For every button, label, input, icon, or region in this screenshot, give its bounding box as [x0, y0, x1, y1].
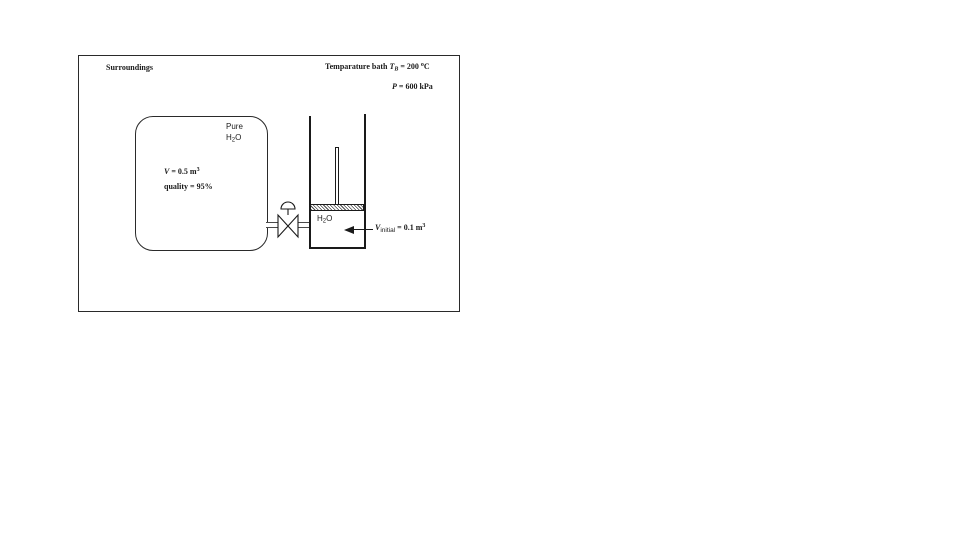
volume-arrow-line: [351, 229, 373, 230]
pressure-value: = 600 kPa: [397, 82, 433, 91]
tank-content-line2: H2O: [226, 132, 243, 147]
bath-value: = 200: [398, 62, 421, 71]
surroundings-box: Surroundings Temparature bath TB = 200 o…: [78, 55, 460, 312]
surroundings-label: Surroundings: [106, 63, 153, 72]
valve-icon: [276, 199, 300, 241]
cylinder-left-wall: [309, 116, 311, 248]
initial-volume-label: Vinitial = 0.1 m3: [375, 223, 425, 234]
tank-content-line1: Pure: [226, 121, 243, 132]
cylinder-right-wall: [364, 114, 366, 248]
cylinder-bottom: [309, 247, 366, 249]
bath-unit: C: [424, 62, 430, 71]
cylinder-water-label: H2O: [317, 213, 332, 228]
diagram-canvas: Surroundings Temparature bath TB = 200 o…: [0, 0, 960, 540]
bath-prefix: Temparature bath: [325, 62, 389, 71]
tank-quality-label: quality = 95%: [164, 182, 213, 191]
temperature-bath-label: Temparature bath TB = 200 oC: [325, 62, 430, 73]
tank-volume-label: V = 0.5 m3: [164, 167, 200, 176]
piston: [310, 204, 364, 211]
tank-content-label: Pure H2O: [226, 121, 243, 147]
pressure-label: P = 600 kPa: [392, 82, 433, 91]
piston-rod: [335, 147, 339, 205]
